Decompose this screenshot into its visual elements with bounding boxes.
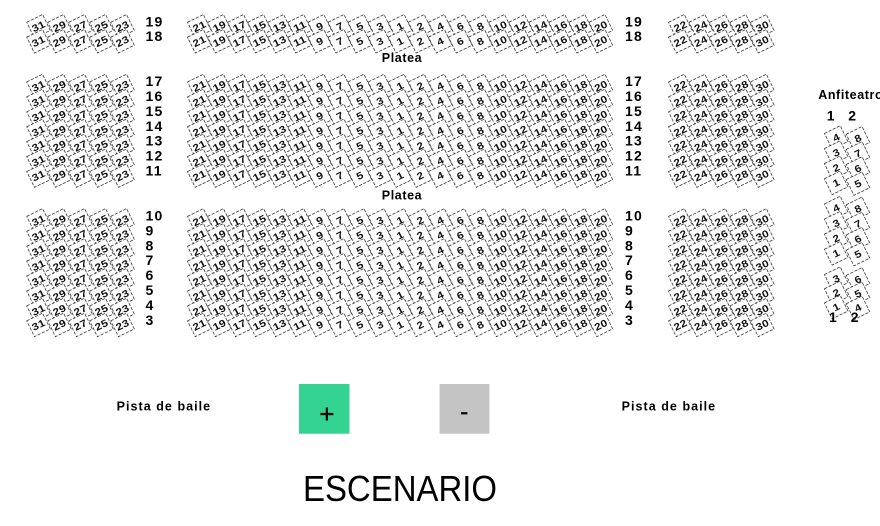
- svg-text:14: 14: [625, 118, 643, 134]
- svg-text:10: 10: [625, 207, 643, 223]
- svg-text:19: 19: [625, 13, 643, 29]
- svg-text:15: 15: [146, 103, 164, 119]
- svg-text:5: 5: [146, 282, 155, 298]
- svg-text:18: 18: [625, 28, 643, 44]
- svg-text:19: 19: [146, 13, 164, 29]
- svg-text:13: 13: [625, 133, 643, 149]
- svg-text:1: 1: [829, 309, 838, 325]
- svg-text:8: 8: [625, 237, 634, 253]
- svg-text:12: 12: [625, 148, 643, 164]
- svg-text:14: 14: [146, 118, 164, 134]
- svg-text:7: 7: [625, 252, 634, 268]
- svg-text:18: 18: [146, 28, 164, 44]
- svg-text:Anfiteatro: Anfiteatro: [818, 88, 880, 102]
- svg-text:5: 5: [625, 282, 634, 298]
- svg-text:2: 2: [851, 309, 860, 325]
- svg-text:8: 8: [146, 237, 155, 253]
- svg-text:2: 2: [848, 107, 857, 123]
- svg-text:16: 16: [625, 88, 643, 104]
- svg-text:3: 3: [146, 312, 155, 328]
- svg-text:6: 6: [625, 267, 634, 283]
- svg-text:Pista de baile: Pista de baile: [622, 400, 717, 414]
- svg-text:ESCENARIO: ESCENARIO: [303, 468, 497, 509]
- svg-text:10: 10: [146, 207, 164, 223]
- svg-text:Platea: Platea: [382, 189, 423, 203]
- svg-text:16: 16: [146, 88, 164, 104]
- svg-text:6: 6: [146, 267, 155, 283]
- svg-text:Platea: Platea: [382, 51, 423, 65]
- svg-text:7: 7: [146, 252, 155, 268]
- svg-text:9: 9: [146, 222, 155, 238]
- svg-text:17: 17: [625, 73, 643, 89]
- svg-text:17: 17: [146, 73, 164, 89]
- svg-text:9: 9: [625, 222, 634, 238]
- svg-text:11: 11: [146, 163, 163, 179]
- svg-text:1: 1: [827, 107, 836, 123]
- svg-text:4: 4: [625, 297, 634, 313]
- svg-text:12: 12: [146, 148, 164, 164]
- svg-text:13: 13: [146, 133, 164, 149]
- svg-text:11: 11: [625, 163, 642, 179]
- svg-text:15: 15: [625, 103, 643, 119]
- svg-text:Pista de baile: Pista de baile: [117, 400, 212, 414]
- svg-text:4: 4: [146, 297, 155, 313]
- svg-text:3: 3: [625, 312, 634, 328]
